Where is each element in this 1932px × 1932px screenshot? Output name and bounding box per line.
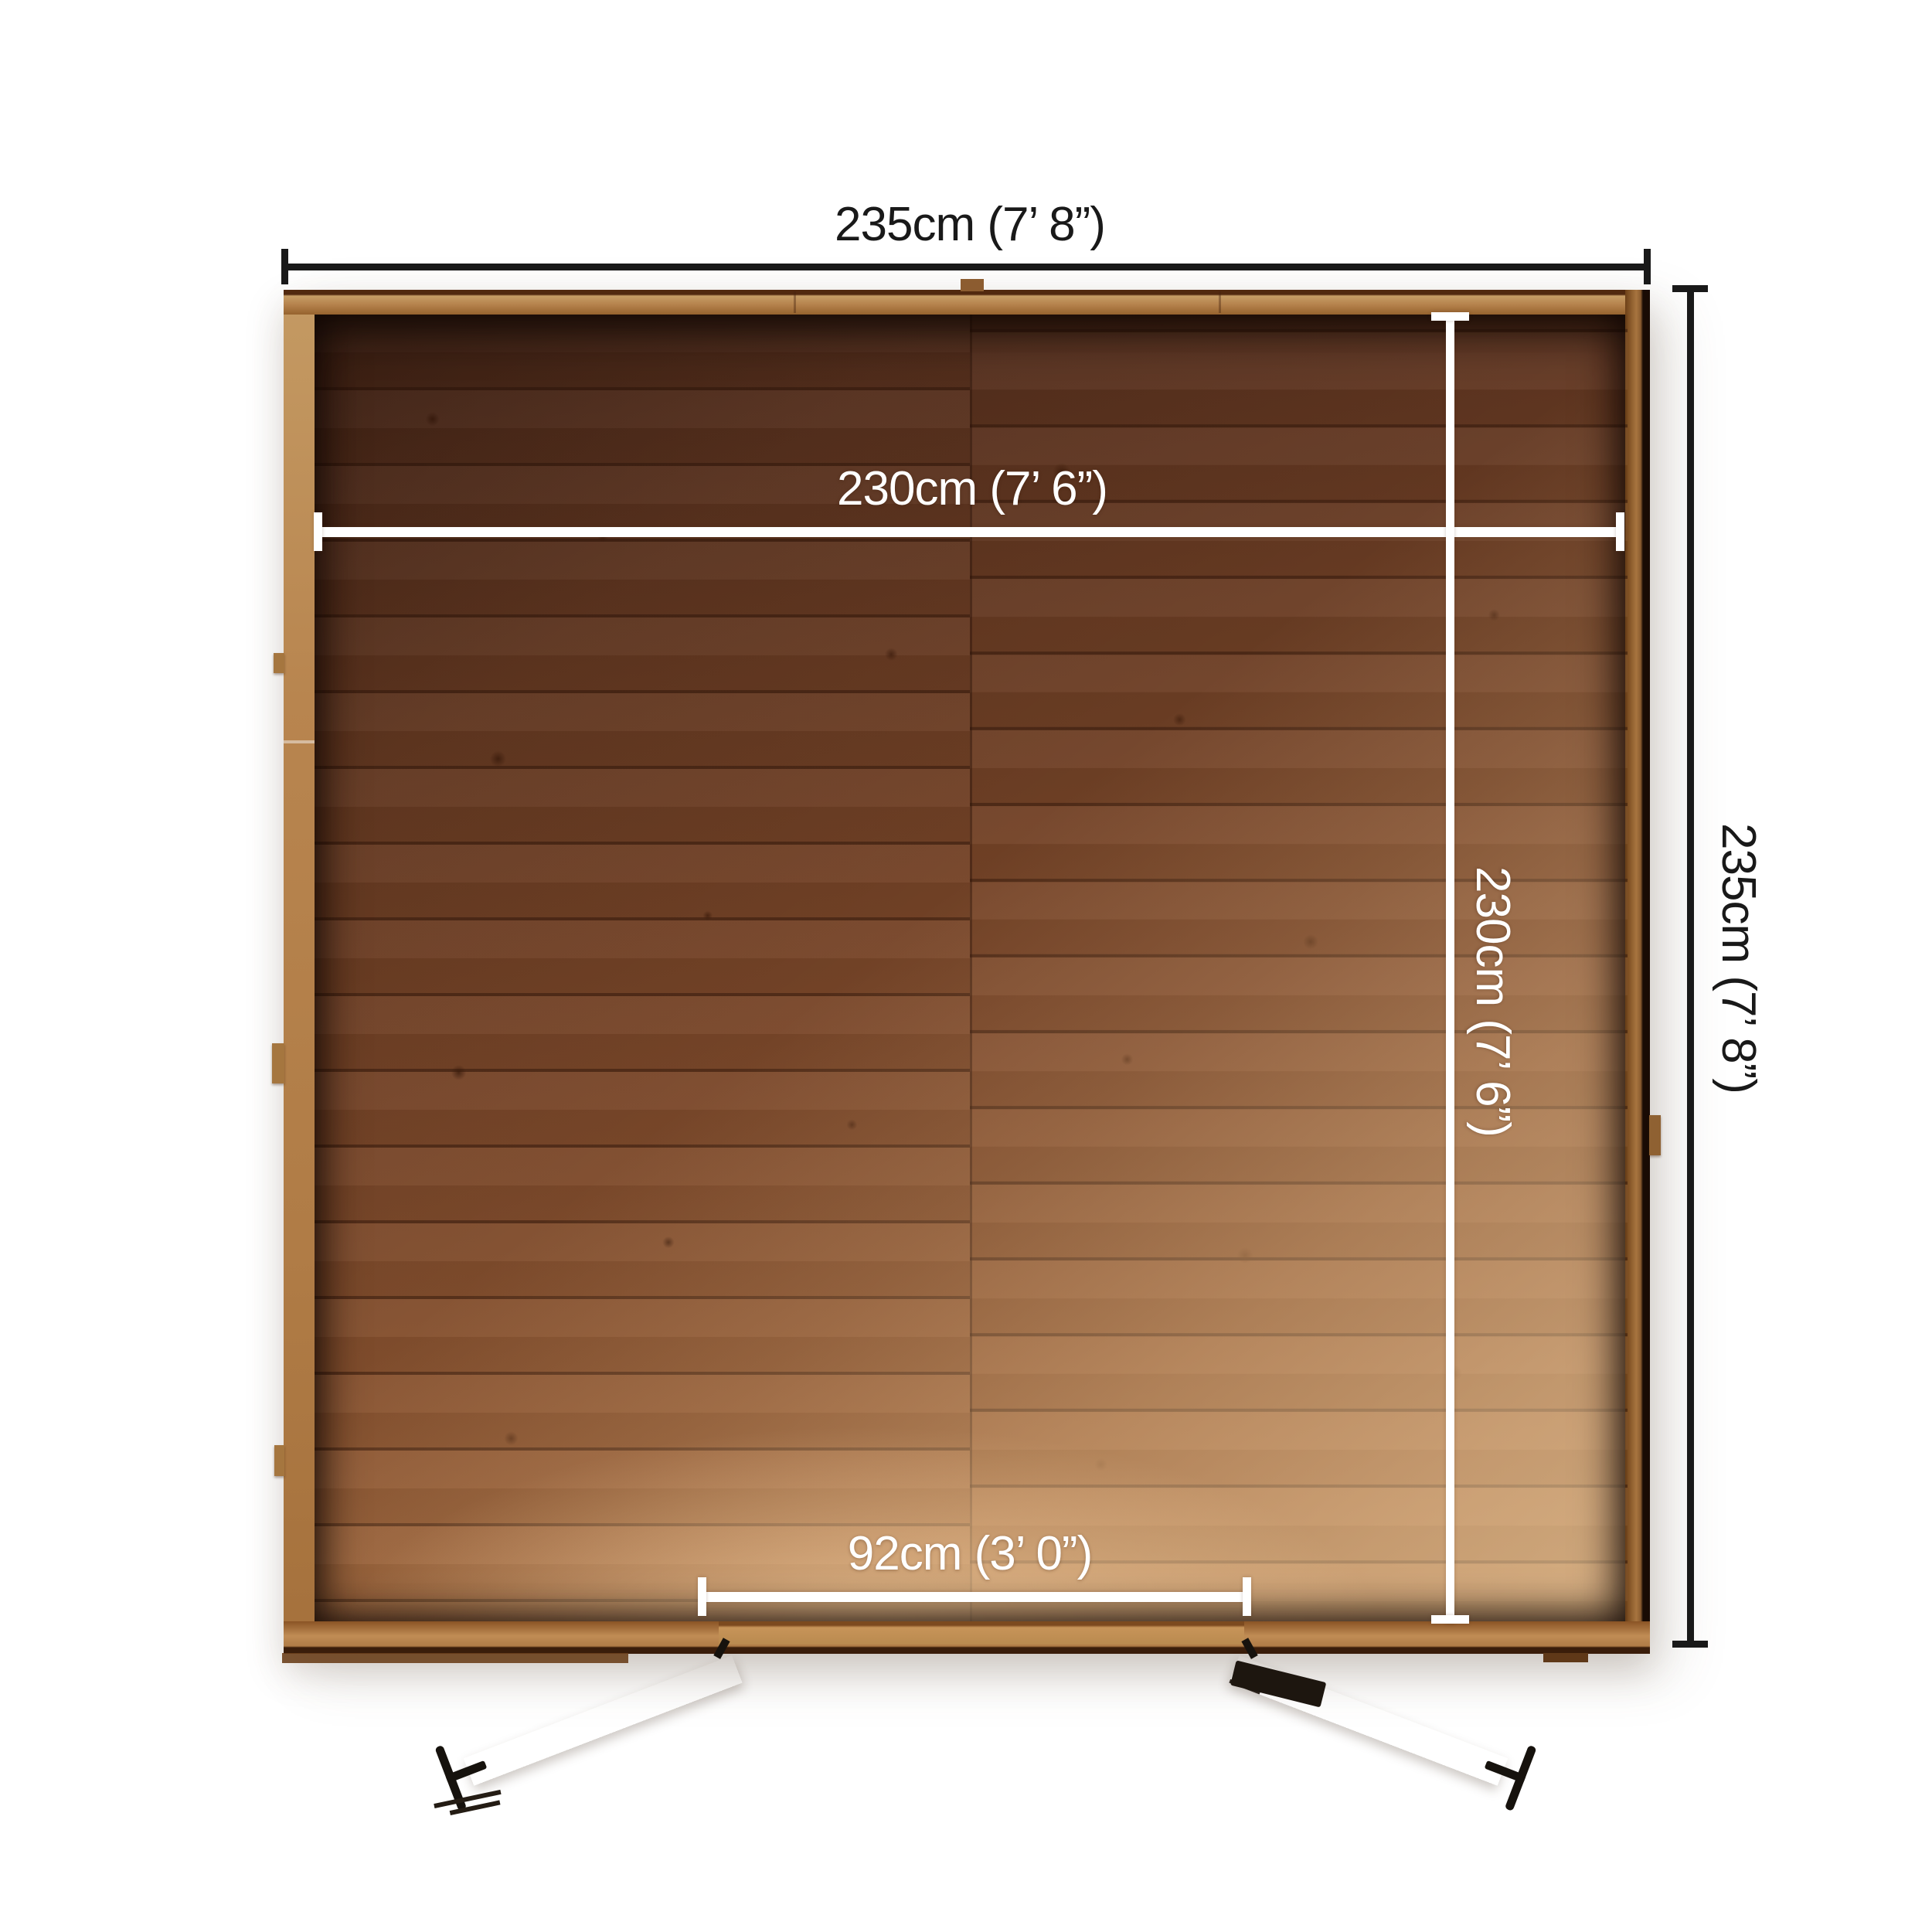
- outer-width-line: [284, 264, 1648, 270]
- door-opening-threshold: [719, 1621, 1244, 1645]
- wall-left: [284, 290, 315, 1654]
- tick-mark: [698, 1577, 706, 1616]
- faded-depth-label: 400cm (13’ 1”): [12, 473, 259, 515]
- tick-mark: [1672, 285, 1708, 292]
- wall-panel-joint: [794, 291, 796, 313]
- wall-bottom: [284, 1621, 1650, 1654]
- base-sill-shadow: [1543, 1653, 1588, 1662]
- tick-mark: [1644, 249, 1651, 284]
- outer-depth-line: [1687, 288, 1694, 1645]
- door-lock-plate-right: [1230, 1660, 1326, 1707]
- wall-frame-tab: [272, 1043, 284, 1083]
- tick-mark: [1431, 312, 1469, 321]
- wall-frame-tab: [1649, 1115, 1661, 1155]
- inner-width-label: 230cm (7’ 6”): [663, 461, 1281, 518]
- inner-depth-line: [1446, 316, 1454, 1624]
- tick-mark: [1243, 1577, 1251, 1616]
- door-leaf-left: [464, 1655, 743, 1786]
- tick-mark: [314, 512, 322, 551]
- tick-mark: [281, 249, 288, 284]
- wall-top: [284, 290, 1650, 315]
- wall-frame-tab: [274, 653, 284, 673]
- wall-right: [1625, 290, 1650, 1654]
- base-sill-shadow: [282, 1653, 628, 1663]
- wall-frame-tab: [274, 1445, 284, 1476]
- tick-mark: [1431, 1615, 1469, 1624]
- inner-depth-label: 230cm (7’ 6”): [1464, 731, 1521, 1272]
- wall-panel-joint: [284, 740, 315, 743]
- outer-depth-label: 235cm (7’ 8”): [1709, 688, 1767, 1229]
- roof-apex-tab: [961, 279, 984, 291]
- wall-panel-joint: [1219, 291, 1221, 313]
- door-width-line: [702, 1592, 1247, 1602]
- tick-mark: [1672, 1641, 1708, 1648]
- door-leaf-right: [1229, 1655, 1508, 1786]
- inner-width-line: [318, 527, 1624, 537]
- tick-mark: [1616, 512, 1624, 551]
- door-width-label: 92cm (3’ 0”): [738, 1526, 1202, 1583]
- outer-width-label: 235cm (7’ 8”): [661, 196, 1279, 253]
- dimension-diagram-canvas: 235cm (7’ 8”) 235cm (7’ 8”) 230cm (7’ 6”…: [0, 0, 1932, 1932]
